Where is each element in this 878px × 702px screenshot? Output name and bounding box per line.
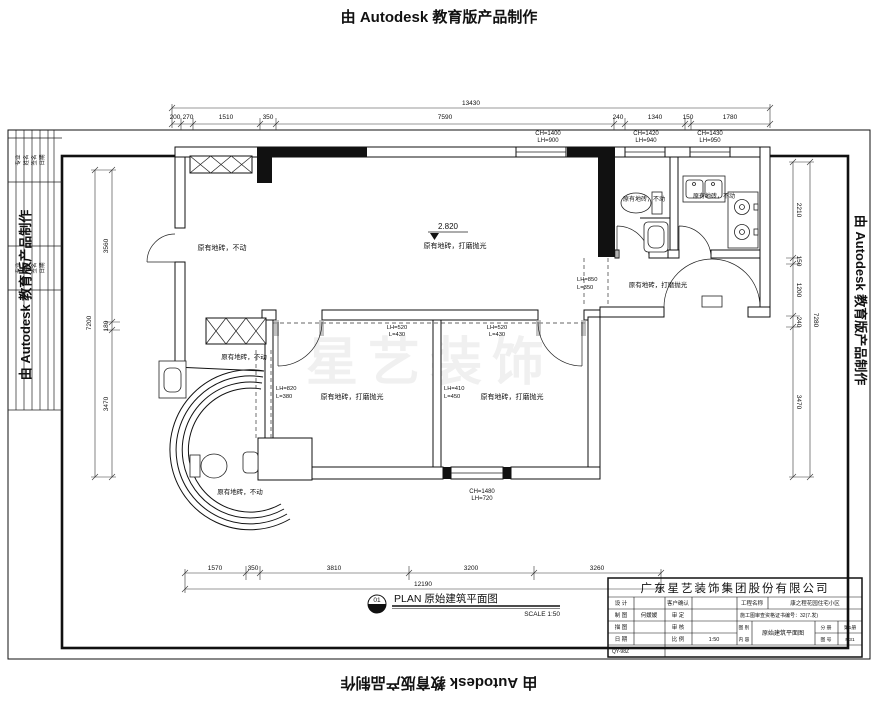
room-note: 原有地砖，不动 [221,352,267,361]
strip-label: 姓名 [22,154,30,165]
toilet [190,454,227,478]
dim: 1570 [208,565,223,572]
dim: 1200 [795,283,802,298]
dim: 350 [248,565,259,572]
beam-label: LH=520 [387,325,407,331]
field-label: 审 定 [672,611,685,619]
window-label: CH=1430 [697,131,723,137]
beam-label: L=380 [276,394,292,400]
beam-label: L=430 [489,332,505,338]
field-label: 工程名称 [741,599,764,607]
beam-label: LH=850 [577,277,597,283]
floor-basin [243,452,258,473]
beam-label: LH=410 [444,386,464,392]
dim: 3260 [590,565,605,572]
window-label: LH=940 [635,138,657,144]
room-note: 原有地砖，打磨抛光 [481,392,544,401]
dim: 3200 [464,565,479,572]
dim-bottom-total: 12190 [414,581,432,588]
field-label: 描 图 [615,623,628,631]
level-value: 2.820 [438,222,459,231]
dim: 350 [263,114,274,121]
window-label: CH=1400 [535,131,561,137]
cad-floorplan-page: { "watermarks": { "top": "由 Autodesk 教育版… [0,0,878,702]
room-note: 原有地砖，不动 [693,192,735,200]
watermark-left: 由 Autodesk 教育版产品制作 [18,210,33,380]
dim: 1340 [648,114,663,121]
plan-title-scale: SCALE 1:50 [524,611,560,618]
beam-label: LH=820 [276,386,296,392]
brand-watermark: 星艺装饰 [306,334,554,392]
room-note: 原有地砖，不动 [198,243,247,252]
archive-number: QY-98Z [612,649,629,655]
bathtub [644,222,668,252]
dim: 150 [795,256,802,267]
field-label: 图 号 [821,637,832,643]
beam-label: LH=520 [487,325,507,331]
dim: 200 [170,114,181,121]
company-name: 广东星艺装饰集团股份有限公司 [641,581,830,595]
dim: 3560 [103,238,110,253]
field-label: 制 图 [615,611,628,619]
dim: 1510 [219,114,234,121]
floorplan-canvas: 专业 姓名 签名 日期 专业 姓名 签名 日期 由 Autodesk 教育版产品… [0,0,878,702]
dim: 3470 [103,396,110,411]
dim-top-total: 13430 [462,100,480,107]
dim-right-total: 7280 [812,313,819,328]
dim: 240 [613,114,624,121]
field-label: 比 例 [672,635,685,643]
window-label: LH=720 [471,496,493,502]
plan-title-label: PLAN 原始建筑平面图 [394,592,498,605]
field-label: 审 核 [672,623,685,631]
dim: 2210 [795,203,802,218]
window-label: LH=950 [699,138,721,144]
window-label: CH=1480 [469,489,495,495]
watermark-top: 由 Autodesk 教育版产品制作 [341,8,538,26]
beam-label: L=350 [577,285,593,291]
field-label: 内 容 [739,636,750,643]
washbasin [159,361,186,398]
room-note: 原有地砖，不动 [217,487,263,496]
field-value: 何媛媛 [641,611,658,619]
field-value: P.31 [845,637,855,643]
plan-title-number: 01 [373,597,381,604]
dim: 7590 [438,114,453,121]
window-label: LH=900 [537,138,559,144]
window-label: CH=1420 [633,131,659,137]
room-note: 原有地砖，打磨抛光 [629,280,688,289]
dim-left-total: 7200 [86,315,93,330]
field-label: 分 册 [821,624,832,631]
watermark-right: 由 Autodesk 教育版产品制作 [853,215,868,385]
room-note: 原有地砖，打磨抛光 [321,392,384,401]
field-value: 施工图审查资格证书编号：32(7.发) [740,612,818,619]
room-note: 原有地砖，不动 [623,195,665,203]
dim: 1780 [723,114,738,121]
field-label: 图 别 [739,624,750,631]
strip-label: 专业 [14,154,22,166]
field-label: 客户确认 [667,599,690,607]
dim: 3470 [795,395,802,410]
dim: 270 [183,114,194,121]
strip-label: 日期 [39,262,46,274]
beam-label: L=450 [444,394,460,400]
field-value: 康之程花园住宅小区 [790,599,840,607]
dim: 180 [103,320,110,331]
gas-stove [728,192,758,248]
strip-label: 日期 [39,154,46,166]
field-label: 日 期 [615,636,628,643]
strip-label: 签名 [30,154,38,165]
room-note: 原有地砖，打磨抛光 [424,241,487,250]
watermark-bottom: 由 Autodesk 教育版产品制作 [341,674,538,692]
dim: 150 [683,114,694,121]
dim: 240 [795,317,802,328]
toilet [621,192,662,214]
dim: 3810 [327,565,342,572]
beam-label: L=430 [389,332,405,338]
drawing-name: 原始建筑平面图 [762,629,804,637]
field-label: 设 计 [615,599,628,607]
field-value: 第1册 [844,624,856,631]
field-value: 1:50 [709,637,720,643]
